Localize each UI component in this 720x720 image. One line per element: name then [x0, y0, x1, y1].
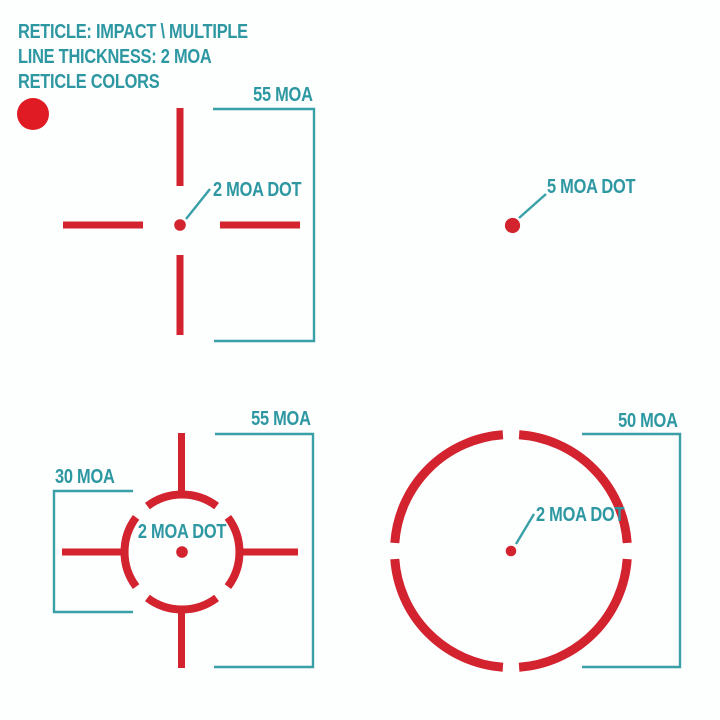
reticle-spec-sheet: RETICLE: IMPACT \ MULTIPLE LINE THICKNES…	[0, 0, 720, 720]
circle-crosshair-left-bar	[62, 549, 126, 556]
circle-dot-pointer-line	[516, 514, 534, 544]
circle-crosshair-center-dot	[176, 546, 188, 558]
crosshair-dot-pointer-line	[186, 189, 210, 219]
crosshair-bottom-bar	[177, 255, 184, 335]
circle-arc-top-left	[395, 435, 503, 543]
circle-crosshair-30moa-label: 30 MOA	[55, 466, 115, 489]
circle-crosshair-arc-bottom	[147, 598, 216, 610]
circle-crosshair-right-bar	[239, 549, 298, 556]
dot-reticle-dot	[505, 218, 520, 233]
crosshair-top-bar	[177, 108, 184, 186]
circle-crosshair-55moa-label: 55 MOA	[251, 408, 311, 431]
crosshair-reticle	[63, 108, 314, 341]
dot-reticle-pointer-line	[519, 194, 546, 218]
circle-crosshair-bottom-bar	[178, 607, 185, 668]
crosshair-right-bar	[220, 222, 300, 229]
circle-dot-label: 2 MOA DOT	[536, 504, 624, 527]
circle-center-dot	[506, 546, 517, 557]
dot-reticle	[505, 194, 546, 233]
crosshair-center-dot	[174, 219, 186, 231]
circle-arc-bottom-left	[395, 559, 503, 667]
circle-crosshair-arc-top	[147, 495, 216, 507]
reticle-graphics	[0, 0, 720, 720]
crosshair-55moa-label: 55 MOA	[253, 84, 313, 107]
dot-reticle-label: 5 MOA DOT	[547, 176, 635, 199]
circle-crosshair-dot-label: 2 MOA DOT	[116, 521, 247, 544]
circle-50moa-label: 50 MOA	[618, 410, 678, 433]
circle-arc-bottom-right	[519, 559, 627, 667]
crosshair-left-bar	[63, 222, 143, 229]
circle-crosshair-top-bar	[178, 433, 185, 497]
circle-reticle	[395, 434, 680, 667]
crosshair-dot-label: 2 MOA DOT	[213, 179, 301, 202]
